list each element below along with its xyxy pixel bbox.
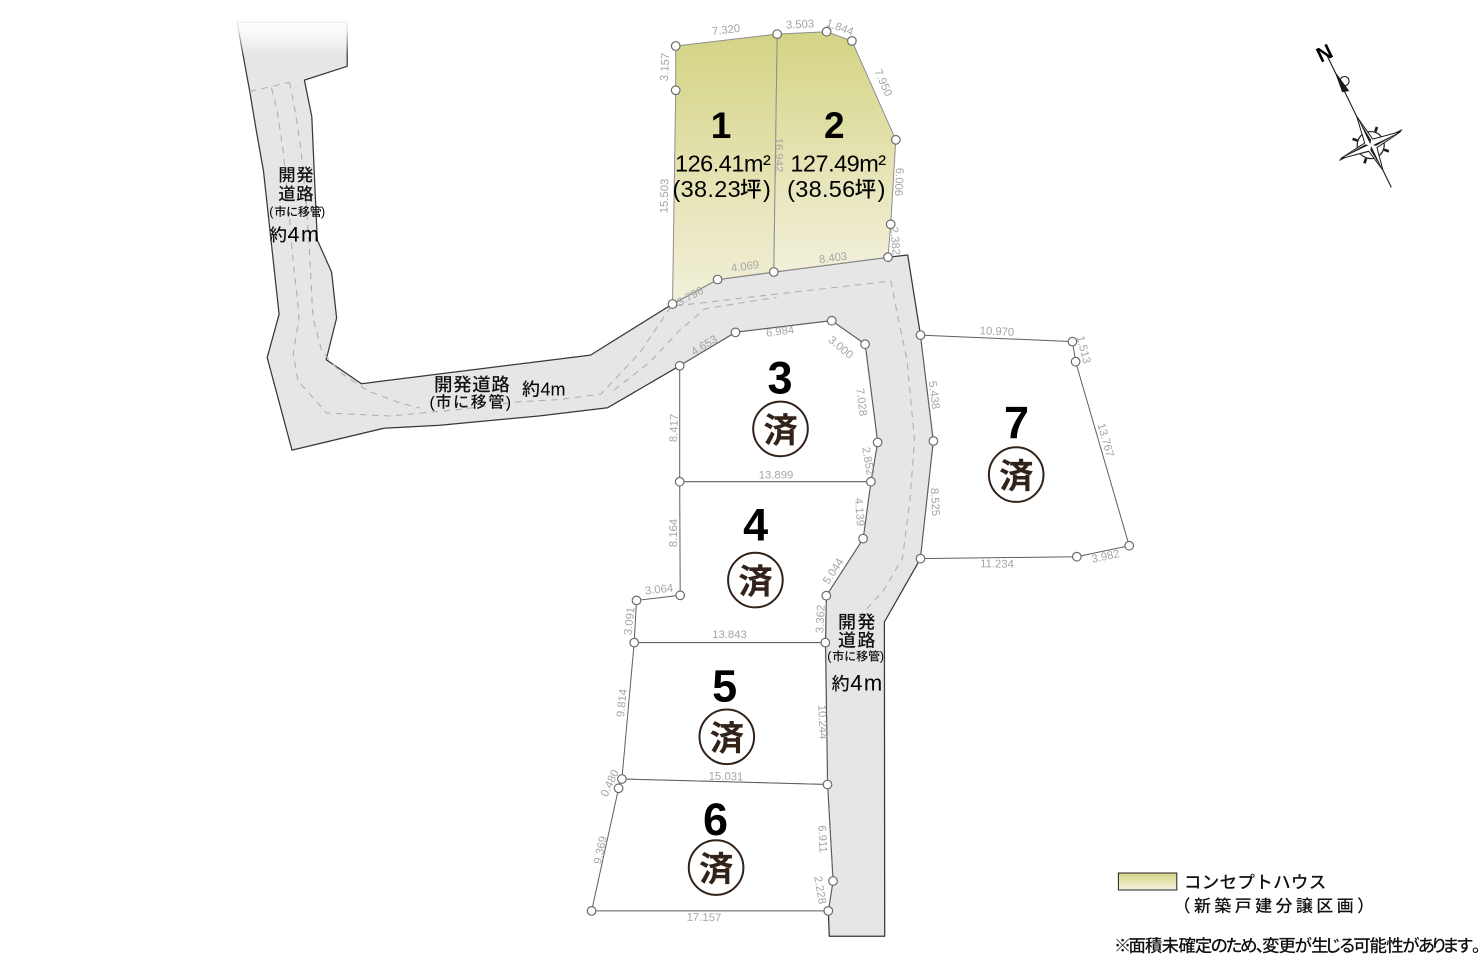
svg-text:8.417: 8.417 (668, 414, 681, 443)
svg-text:13.843: 13.843 (712, 629, 747, 641)
svg-text:6.006: 6.006 (892, 168, 905, 197)
svg-text:127.49m²: 127.49m² (790, 150, 886, 176)
svg-text:): ) (321, 205, 325, 219)
svg-text:16.942: 16.942 (773, 138, 785, 173)
svg-text:4m: 4m (850, 670, 884, 695)
svg-text:3.362: 3.362 (814, 605, 827, 634)
svg-text:10.970: 10.970 (979, 325, 1014, 338)
svg-text:5: 5 (712, 660, 737, 711)
svg-text:15.503: 15.503 (659, 179, 672, 214)
svg-text:7.320: 7.320 (711, 23, 740, 38)
svg-text:3: 3 (767, 352, 792, 403)
svg-text:10.244: 10.244 (815, 704, 829, 739)
svg-text:4: 4 (743, 500, 768, 551)
svg-text:): ) (878, 176, 886, 202)
svg-text:6.911: 6.911 (815, 825, 828, 853)
svg-text:11.234: 11.234 (980, 558, 1014, 571)
svg-text:3.064: 3.064 (644, 583, 673, 598)
svg-text:4.139: 4.139 (852, 498, 866, 527)
svg-text:(38.23: (38.23 (673, 176, 741, 202)
svg-text:17.157: 17.157 (687, 912, 722, 925)
svg-text:8.525: 8.525 (928, 488, 941, 517)
svg-text:6: 6 (703, 794, 728, 845)
svg-text:2: 2 (824, 105, 845, 146)
svg-text:): ) (880, 650, 884, 664)
svg-text:3.503: 3.503 (786, 18, 815, 31)
svg-text:8.164: 8.164 (668, 519, 680, 547)
svg-text:): ) (506, 395, 511, 412)
svg-text:15.031: 15.031 (709, 771, 744, 784)
svg-text:N: N (1313, 40, 1337, 67)
svg-text:13.899: 13.899 (759, 470, 794, 482)
svg-text:7: 7 (1004, 397, 1029, 448)
svg-text:126.41m²: 126.41m² (675, 150, 771, 176)
svg-text:(38.56: (38.56 (787, 176, 855, 202)
svg-text:1: 1 (711, 105, 732, 146)
svg-text:3.157: 3.157 (659, 53, 672, 82)
svg-text:): ) (763, 176, 771, 202)
svg-text:4m: 4m (541, 380, 566, 400)
svg-text:(: ( (430, 395, 436, 412)
svg-text:2.382: 2.382 (887, 226, 901, 255)
svg-text:4m: 4m (288, 222, 321, 246)
